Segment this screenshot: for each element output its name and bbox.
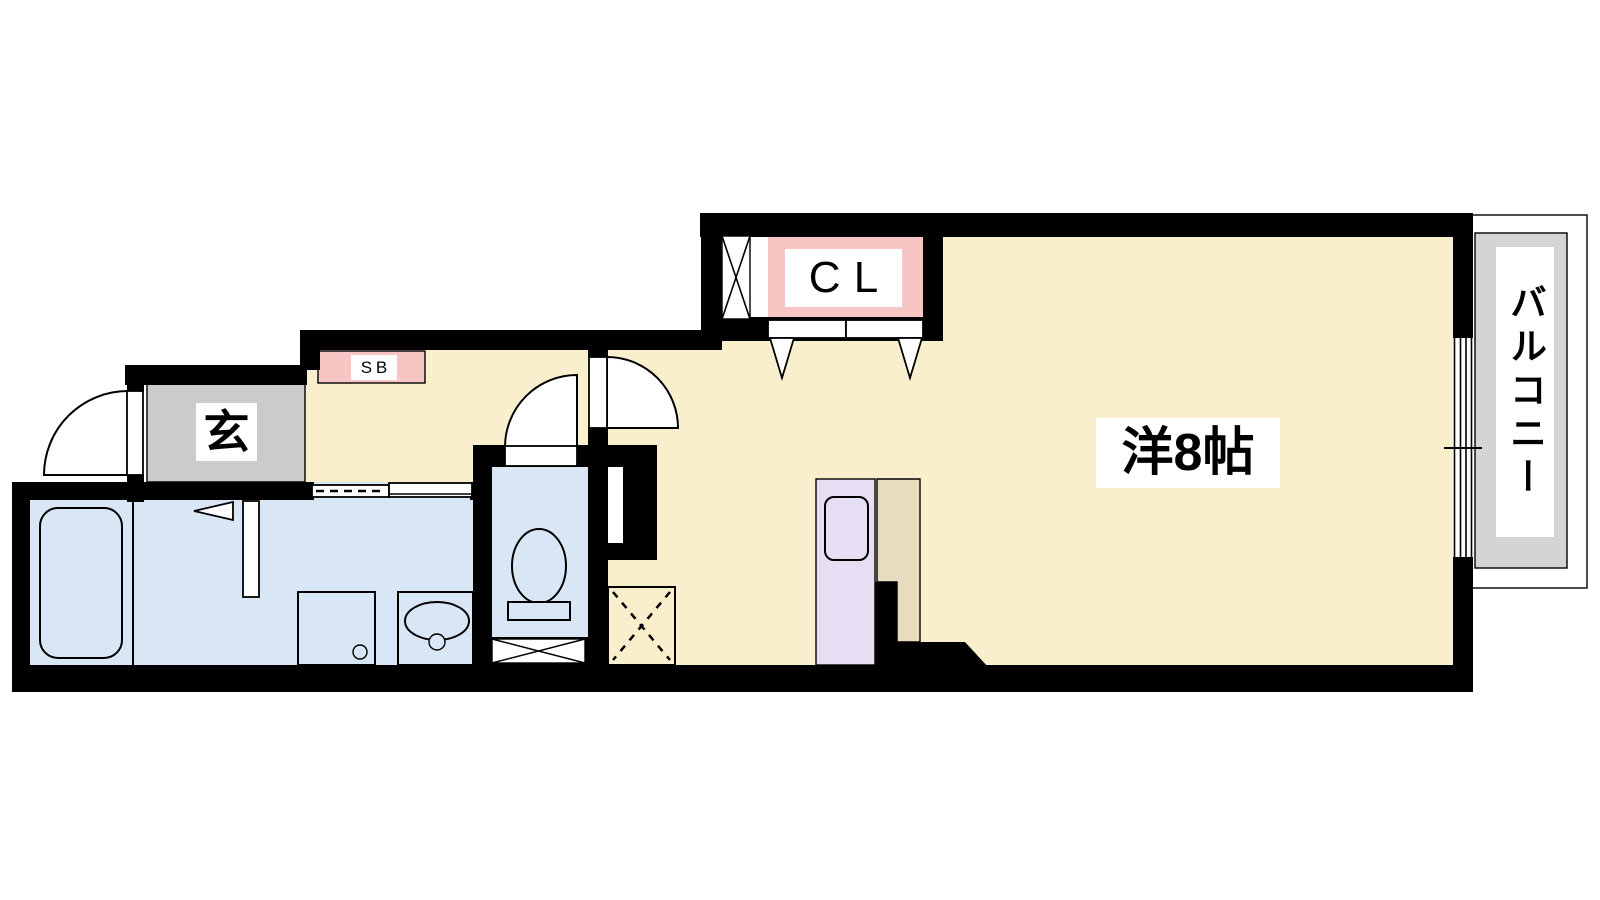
toilet-bowl: [512, 529, 566, 603]
wall-entry-stub-top: [127, 365, 144, 392]
wall-hall-top: [300, 330, 722, 350]
shoe-box-label: SB: [351, 355, 397, 380]
wall-bottom: [12, 665, 1473, 692]
entrance-door-leaf: [127, 391, 143, 475]
bathtub: [40, 508, 122, 658]
entrance-label: 玄: [196, 403, 257, 461]
toilet-tank: [508, 602, 570, 620]
floor-plan: CL SB 玄 洋8帖 バルコニー: [0, 0, 1600, 900]
entrance-door-swing: [44, 391, 128, 475]
wall-closet-left: [701, 235, 722, 331]
wall-genkan-top: [125, 365, 307, 385]
washing-machine-drain: [353, 645, 367, 659]
balcony-label: バルコニー: [1496, 247, 1554, 537]
bathroom-door-leaf: [243, 501, 259, 597]
wall-entry-stub-bottom: [127, 474, 144, 502]
pipe-space: [722, 236, 750, 319]
wall-niche-bottom: [607, 543, 642, 560]
washstand-faucet: [429, 634, 445, 650]
toilet-door-leaf: [505, 446, 577, 466]
wall-hall-room-lower: [588, 428, 608, 668]
wall-left: [12, 482, 30, 692]
wall-genkan-step: [300, 330, 320, 370]
closet-door-panel-left: [768, 320, 846, 338]
wall-top: [700, 213, 1473, 237]
wall-bath-top: [12, 482, 314, 500]
closet-label: CL: [785, 249, 902, 307]
wall-right-upper: [1453, 213, 1473, 340]
pipe-niche: [608, 467, 623, 543]
main-room-label: 洋8帖: [1096, 418, 1280, 488]
wall-toilet-left: [473, 445, 492, 667]
closet-door-panel-right: [846, 320, 923, 338]
room-door-leaf: [589, 357, 607, 428]
washroom-sliding-door-panel: [389, 483, 472, 497]
